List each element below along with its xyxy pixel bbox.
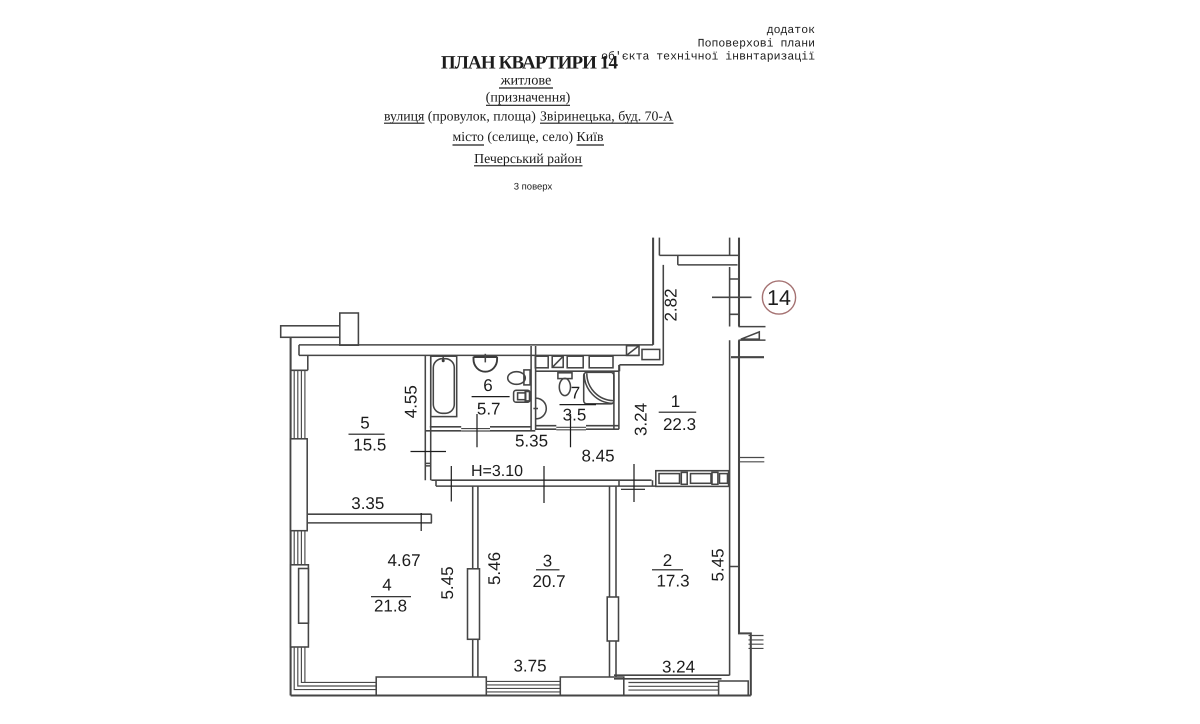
svg-text:3: 3 <box>543 552 552 571</box>
svg-text:місто (селище, село) Київ: місто (селище, село) Київ <box>453 129 604 144</box>
svg-text:22.3: 22.3 <box>663 415 696 434</box>
svg-text:3.24: 3.24 <box>632 403 651 436</box>
svg-text:3.35: 3.35 <box>351 494 384 513</box>
svg-text:21.8: 21.8 <box>374 597 407 616</box>
svg-text:1: 1 <box>671 392 680 411</box>
svg-text:5.46: 5.46 <box>485 552 504 585</box>
svg-text:4: 4 <box>382 576 391 595</box>
svg-text:(призначення): (призначення) <box>486 91 571 106</box>
svg-text:8.45: 8.45 <box>581 447 614 466</box>
svg-text:ПЛАН КВАРТИРИ 14: ПЛАН КВАРТИРИ 14 <box>441 53 619 74</box>
svg-text:житлове: житлове <box>500 73 552 89</box>
svg-text:15.5: 15.5 <box>353 436 386 455</box>
svg-text:5.45: 5.45 <box>709 548 728 581</box>
svg-text:7: 7 <box>571 384 580 403</box>
svg-text:4.67: 4.67 <box>387 551 420 570</box>
svg-text:5.35: 5.35 <box>515 432 548 451</box>
svg-text:3.75: 3.75 <box>513 657 546 676</box>
svg-text:додаток: додаток <box>767 24 815 37</box>
svg-text:5: 5 <box>360 413 369 432</box>
svg-text:4.55: 4.55 <box>401 385 420 418</box>
svg-text:Печерський район: Печерський район <box>474 151 582 166</box>
svg-text:об'єкта технічної інвнтаризаці: об'єкта технічної інвнтаризації <box>601 51 815 64</box>
svg-text:14: 14 <box>767 286 791 310</box>
svg-text:вулиця (провулок, площа): вулиця (провулок, площа) <box>384 109 536 124</box>
svg-text:6: 6 <box>483 376 492 395</box>
svg-text:2.82: 2.82 <box>661 288 680 321</box>
svg-text:3 поверх: 3 поверх <box>514 182 553 193</box>
svg-text:3.5: 3.5 <box>563 406 587 425</box>
svg-text:17.3: 17.3 <box>656 572 689 591</box>
svg-text:5.45: 5.45 <box>438 566 457 599</box>
svg-text:H=3.10: H=3.10 <box>471 463 523 480</box>
svg-text:3.24: 3.24 <box>662 658 695 677</box>
svg-text:2: 2 <box>663 551 672 570</box>
svg-text:Звіринецька, буд. 70-А: Звіринецька, буд. 70-А <box>540 109 673 124</box>
svg-text:Поповерхові плани: Поповерхові плани <box>698 38 815 51</box>
svg-text:20.7: 20.7 <box>532 572 565 591</box>
svg-text:5.7: 5.7 <box>477 400 501 419</box>
